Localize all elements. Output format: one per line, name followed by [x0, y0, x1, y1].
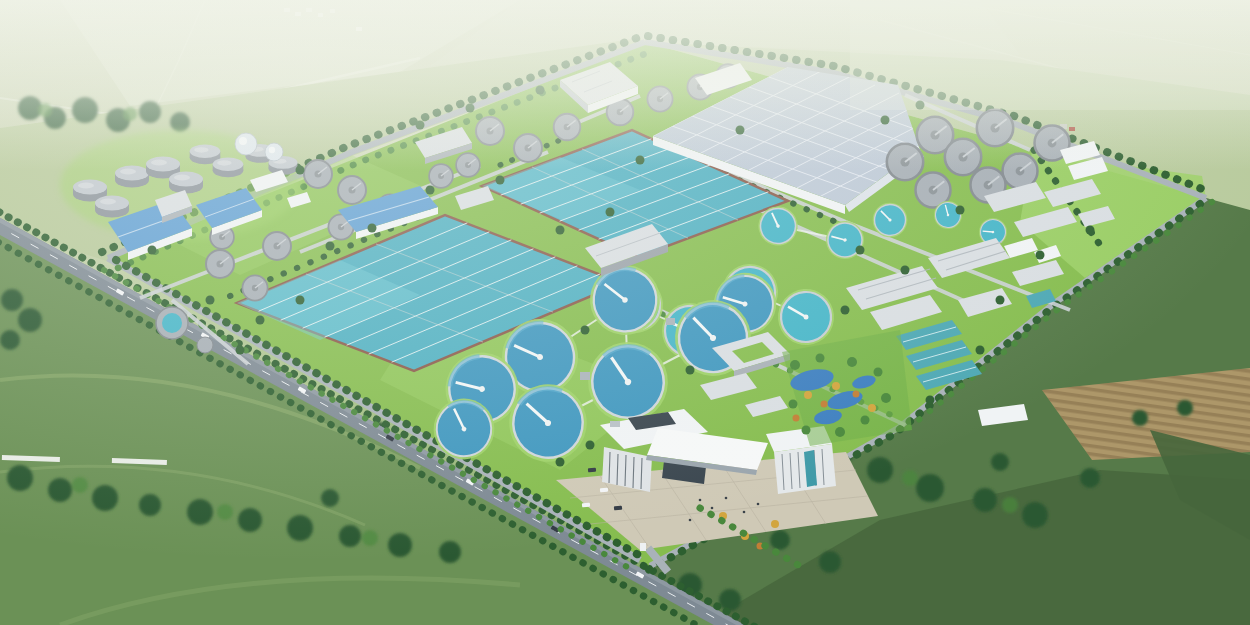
aerial-rendering: [0, 0, 1250, 625]
haze-overlay: [0, 0, 1250, 625]
